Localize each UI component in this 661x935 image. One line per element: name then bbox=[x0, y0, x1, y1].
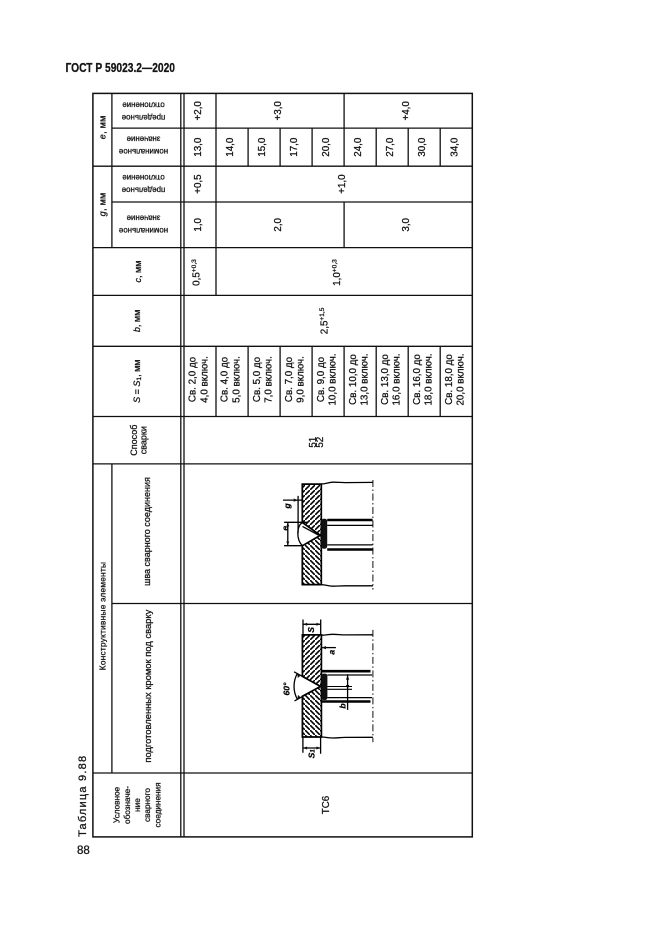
svg-text:34,0: 34,0 bbox=[449, 137, 460, 157]
svg-text:ГОСТ Р 59023.2—2020: ГОСТ Р 59023.2—2020 bbox=[66, 61, 176, 75]
svg-text:+0,5: +0,5 bbox=[193, 174, 204, 194]
svg-text:шва сварного соединения: шва сварного соединения bbox=[142, 477, 152, 586]
svg-text:g: g bbox=[282, 503, 292, 510]
svg-text:Таблица 9.88: Таблица 9.88 bbox=[77, 756, 89, 837]
svg-text:Св. 7,0 до9,0 включ.: Св. 7,0 до9,0 включ. bbox=[283, 356, 306, 403]
svg-text:g, мм: g, мм bbox=[97, 192, 107, 216]
svg-text:88: 88 bbox=[77, 845, 90, 857]
svg-text:b, мм: b, мм bbox=[132, 310, 142, 332]
svg-text:е, мм: е, мм bbox=[97, 115, 107, 139]
svg-text:S: S bbox=[306, 627, 316, 633]
svg-text:+2,0: +2,0 bbox=[193, 101, 204, 121]
svg-text:2,0: 2,0 bbox=[273, 217, 284, 231]
svg-text:а: а bbox=[327, 650, 337, 655]
svg-text:Св. 16,0 до18,0 включ.: Св. 16,0 до18,0 включ. bbox=[411, 353, 434, 405]
svg-text:14,0: 14,0 bbox=[225, 137, 236, 157]
svg-text:27,0: 27,0 bbox=[385, 137, 396, 157]
svg-text:Св. 18,0 до20,0 включ.: Св. 18,0 до20,0 включ. bbox=[444, 353, 467, 405]
svg-text:Св. 10,0 до13,0 включ.: Св. 10,0 до13,0 включ. bbox=[347, 353, 370, 405]
svg-text:подготовленных кромок под свар: подготовленных кромок под сварку bbox=[142, 609, 153, 762]
svg-text:1,0: 1,0 bbox=[193, 217, 204, 231]
svg-text:30,0: 30,0 bbox=[417, 137, 428, 157]
svg-text:Способсварки: Способсварки bbox=[129, 425, 149, 456]
svg-text:е: е bbox=[280, 526, 290, 531]
svg-text:Конструктивные элементы: Конструктивные элементы bbox=[99, 562, 108, 670]
svg-text:Св. 4,0 до5,0 включ.: Св. 4,0 до5,0 включ. bbox=[219, 356, 242, 403]
svg-text:+3,0: +3,0 bbox=[273, 101, 284, 121]
svg-text:52: 52 bbox=[315, 437, 326, 448]
svg-text:Св. 5,0 до7,0 включ.: Св. 5,0 до7,0 включ. bbox=[251, 356, 274, 403]
svg-text:b: b bbox=[338, 703, 348, 708]
svg-text:Св. 2,0 до4,0 включ.: Св. 2,0 до4,0 включ. bbox=[187, 356, 210, 403]
svg-text:17,0: 17,0 bbox=[289, 137, 300, 157]
svg-text:+1,0: +1,0 bbox=[337, 174, 348, 194]
svg-text:с, мм: с, мм bbox=[133, 261, 143, 283]
svg-text:15,0: 15,0 bbox=[257, 137, 268, 157]
svg-text:+4,0: +4,0 bbox=[401, 101, 412, 121]
svg-text:24,0: 24,0 bbox=[353, 137, 364, 157]
svg-text:ТС6: ТС6 bbox=[321, 795, 332, 814]
svg-text:60°: 60° bbox=[282, 682, 292, 695]
svg-text:13,0: 13,0 bbox=[193, 137, 204, 157]
svg-text:S = S1, мм: S = S1, мм bbox=[132, 360, 143, 403]
svg-text:3,0: 3,0 bbox=[401, 217, 412, 231]
svg-text:Св. 13,0 до16,0 включ.: Св. 13,0 до16,0 включ. bbox=[379, 353, 402, 405]
svg-text:20,0: 20,0 bbox=[321, 137, 332, 157]
svg-text:Св. 9,0 до10,0 включ.: Св. 9,0 до10,0 включ. bbox=[315, 353, 338, 405]
